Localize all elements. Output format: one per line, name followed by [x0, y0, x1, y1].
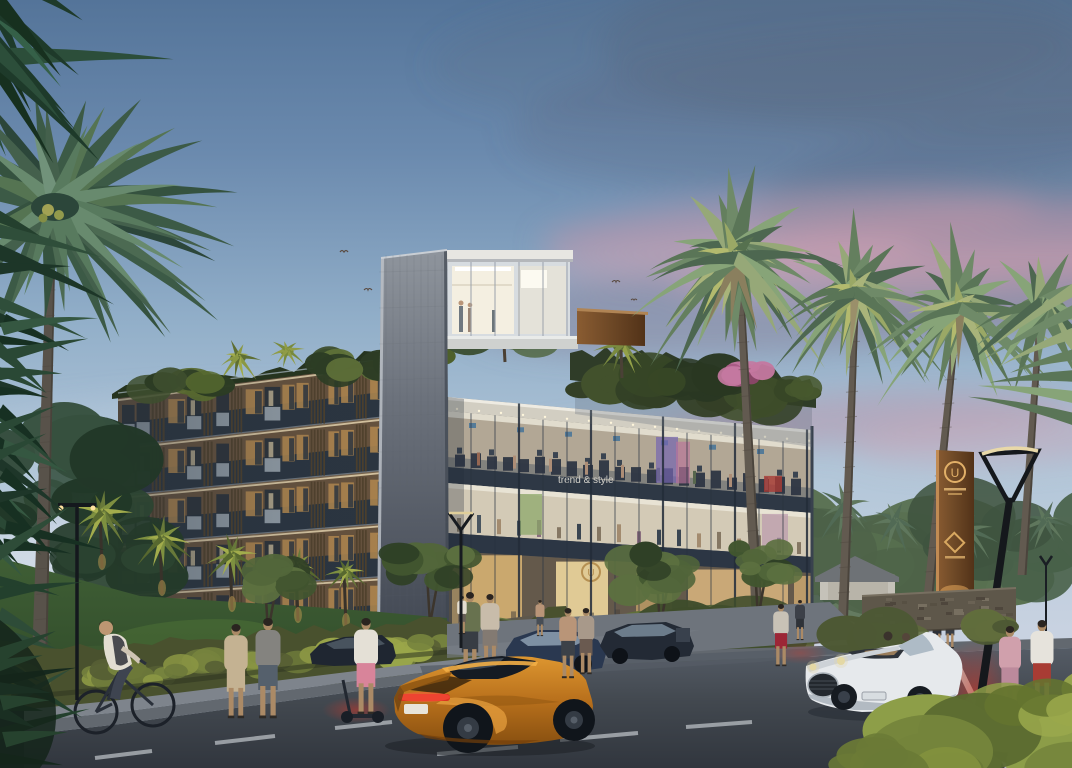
svg-text:U: U: [951, 466, 960, 480]
